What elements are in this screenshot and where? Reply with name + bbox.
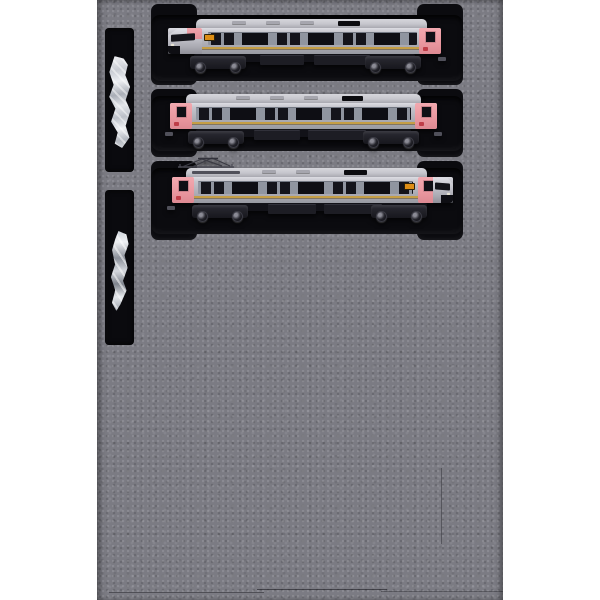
car-2-body [170,103,437,129]
coupler [167,206,175,210]
foam-crease [441,468,442,544]
end-door-window [176,106,187,118]
roof-vent [296,170,310,173]
bogie [363,131,419,144]
wheel [411,211,422,222]
wheel [228,137,239,148]
coupler [165,132,173,136]
product-photo [0,0,600,600]
roof-vent [262,170,276,173]
bogie [188,131,244,144]
pink-end-band [170,103,192,129]
wheel [195,62,206,73]
roof-vent [266,21,280,24]
foam-seam [257,589,387,590]
window-band [198,181,413,194]
pantograph [174,155,240,169]
coupler [434,132,442,136]
roof-vent [270,96,284,99]
wheel [232,211,243,222]
car-3-cab [433,177,453,203]
bogie [371,205,427,218]
cab-skirt [441,195,453,203]
wheel [197,211,208,222]
end-door-window [425,31,436,43]
end-marking [174,122,179,126]
end-marking [419,122,424,126]
underfloor-box [314,55,370,65]
window-band [208,32,417,45]
bogie [190,56,246,69]
air-conditioner-unit [338,21,360,26]
wheel [230,62,241,73]
roof-vent [232,21,246,24]
cab-skirt [168,46,180,54]
train-car-1 [168,19,441,80]
underfloor-box [308,130,366,140]
bogie [365,56,421,69]
underfloor-box [260,55,304,65]
train-car-3 [172,168,453,230]
pink-end-band [415,103,437,129]
end-door-window [421,106,432,118]
bogie [192,205,248,218]
end-door-window [178,180,189,192]
roof-vent [300,21,314,24]
wheel [368,137,379,148]
coupler [438,57,446,61]
window-band [196,107,411,120]
wheel [405,62,416,73]
pink-end-band [419,28,441,54]
pantograph-base [192,171,240,174]
wheel [193,137,204,148]
end-marking [423,47,428,51]
foam-seam [109,592,264,593]
gold-stripe [174,196,451,198]
underfloor-box [268,204,316,214]
destination-sign [204,34,215,41]
air-conditioner-unit [344,170,367,175]
gold-stripe [172,122,435,124]
roof-vent [236,96,250,99]
wheel [376,211,387,222]
destination-sign [404,183,415,190]
pink-end-band [172,177,194,203]
roof-vent [304,96,318,99]
wheel [370,62,381,73]
underfloor-box [254,130,300,140]
foam-tray [97,0,503,600]
car-1-body [168,28,441,54]
windshield [435,182,450,190]
car-3-body [172,177,453,203]
car-1-cab [168,28,202,54]
gold-stripe [170,47,439,49]
train-car-2 [170,94,437,150]
air-conditioner-unit [342,96,363,101]
foam-seam [381,591,503,592]
end-marking [176,196,181,200]
wheel [403,137,414,148]
